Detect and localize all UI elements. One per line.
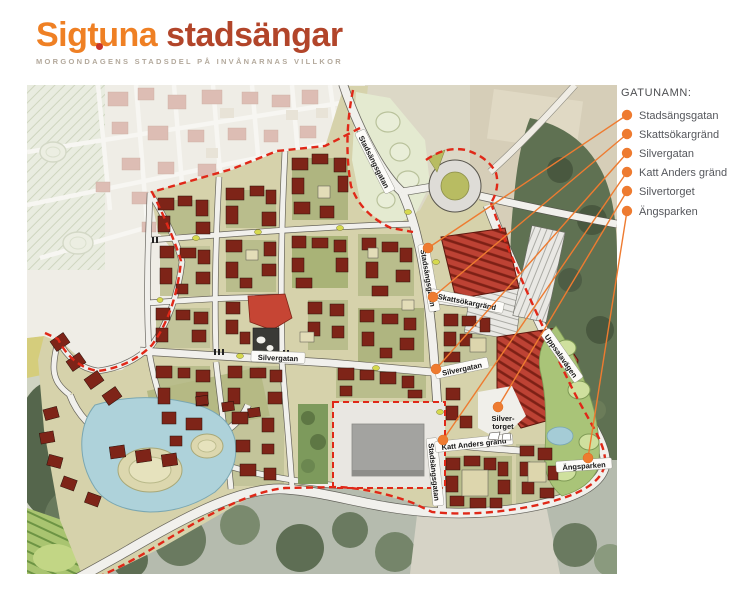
legend-item-skattsokargrand: Skattsökargränd: [622, 129, 719, 141]
svg-text:Skattsökargränd: Skattsökargränd: [639, 129, 719, 141]
svg-text:Stadsängsgatan: Stadsängsgatan: [639, 110, 719, 122]
legend-dot-icon: [622, 206, 632, 216]
svg-text:Katt Anders gränd: Katt Anders gränd: [639, 167, 727, 179]
legend-dot-icon: [622, 110, 632, 120]
svg-text:Silvergatan: Silvergatan: [258, 353, 299, 363]
legend-dot-icon: [622, 167, 632, 177]
legend-dot-icon: [622, 186, 632, 196]
legend-dot-icon: [622, 129, 632, 139]
street-label-silvergatan-west: Silvergatan: [251, 351, 305, 364]
legend-title: GATUNAMN:: [621, 87, 692, 99]
legend-item-silvergatan: Silvergatan: [622, 148, 694, 160]
svg-text:Silvergatan: Silvergatan: [639, 148, 694, 160]
legend-item-katt-anders-grand: Katt Anders gränd: [622, 167, 727, 179]
legend-item-angsparken: Ängsparken: [622, 206, 698, 218]
site-plan-map: Stadsängsgatan Stadsängsgatan Stadsängsg…: [0, 0, 746, 614]
legend-item-silvertorget: Silvertorget: [622, 186, 695, 198]
svg-text:Ängsparken: Ängsparken: [639, 206, 698, 218]
green-strip: [298, 404, 328, 484]
svg-text:Silvertorget: Silvertorget: [639, 186, 695, 198]
page: Sigtunastadsängar MORGONDAGENS STADSDEL …: [0, 0, 746, 614]
legend-dot-icon: [622, 148, 632, 158]
legend-item-stadsangsgatan: Stadsängsgatan: [622, 110, 719, 122]
map-canvas: Stadsängsgatan Stadsängsgatan Stadsängsg…: [14, 84, 626, 588]
legend: GATUNAMN: Stadsängsgatan Skattsökargränd…: [621, 87, 727, 218]
svg-text:torget: torget: [492, 422, 514, 431]
